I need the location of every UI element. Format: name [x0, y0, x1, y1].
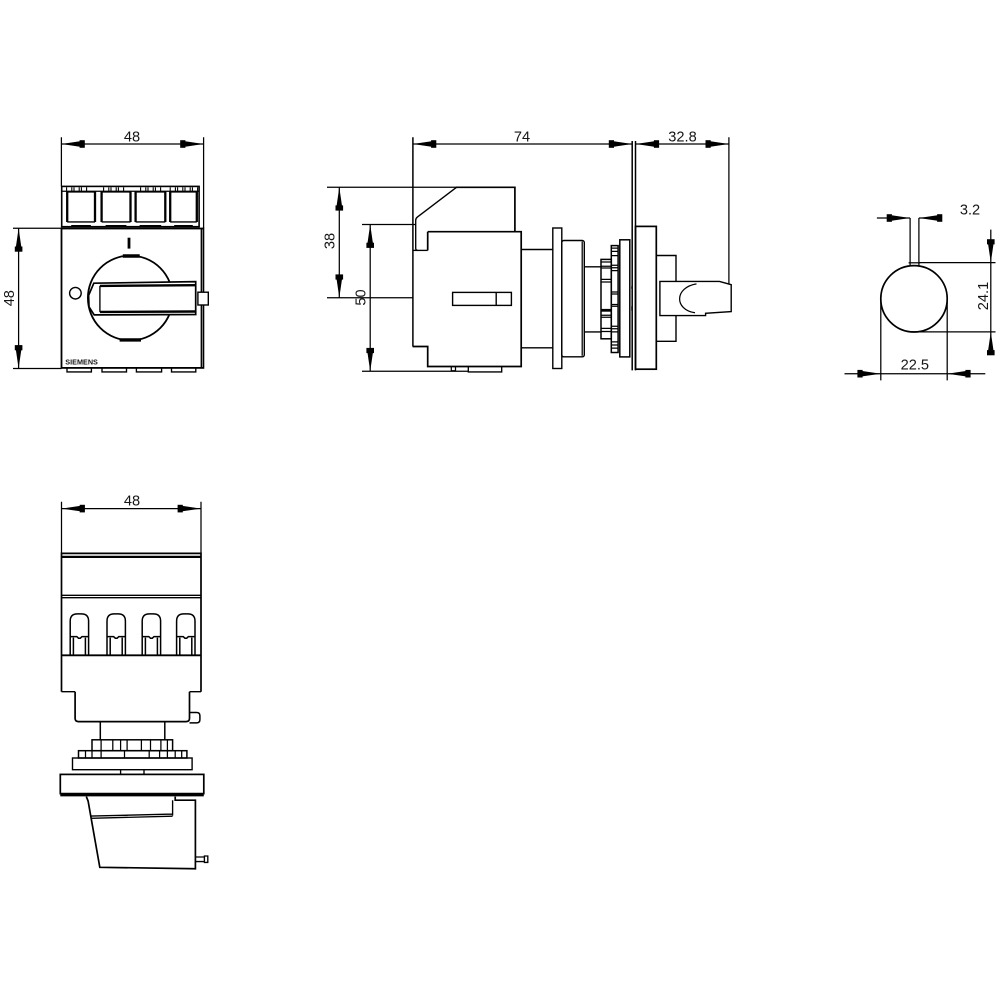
svg-text:50: 50: [353, 289, 369, 305]
svg-text:48: 48: [124, 129, 140, 145]
svg-text:48: 48: [2, 290, 18, 306]
svg-text:SIEMENS: SIEMENS: [65, 358, 98, 367]
svg-text:3.2: 3.2: [960, 202, 980, 218]
svg-text:22.5: 22.5: [901, 358, 929, 374]
svg-text:24.1: 24.1: [976, 282, 992, 310]
svg-text:74: 74: [514, 129, 530, 145]
svg-text:38: 38: [323, 233, 339, 249]
svg-text:48: 48: [124, 494, 140, 510]
svg-text:32.8: 32.8: [668, 129, 696, 145]
